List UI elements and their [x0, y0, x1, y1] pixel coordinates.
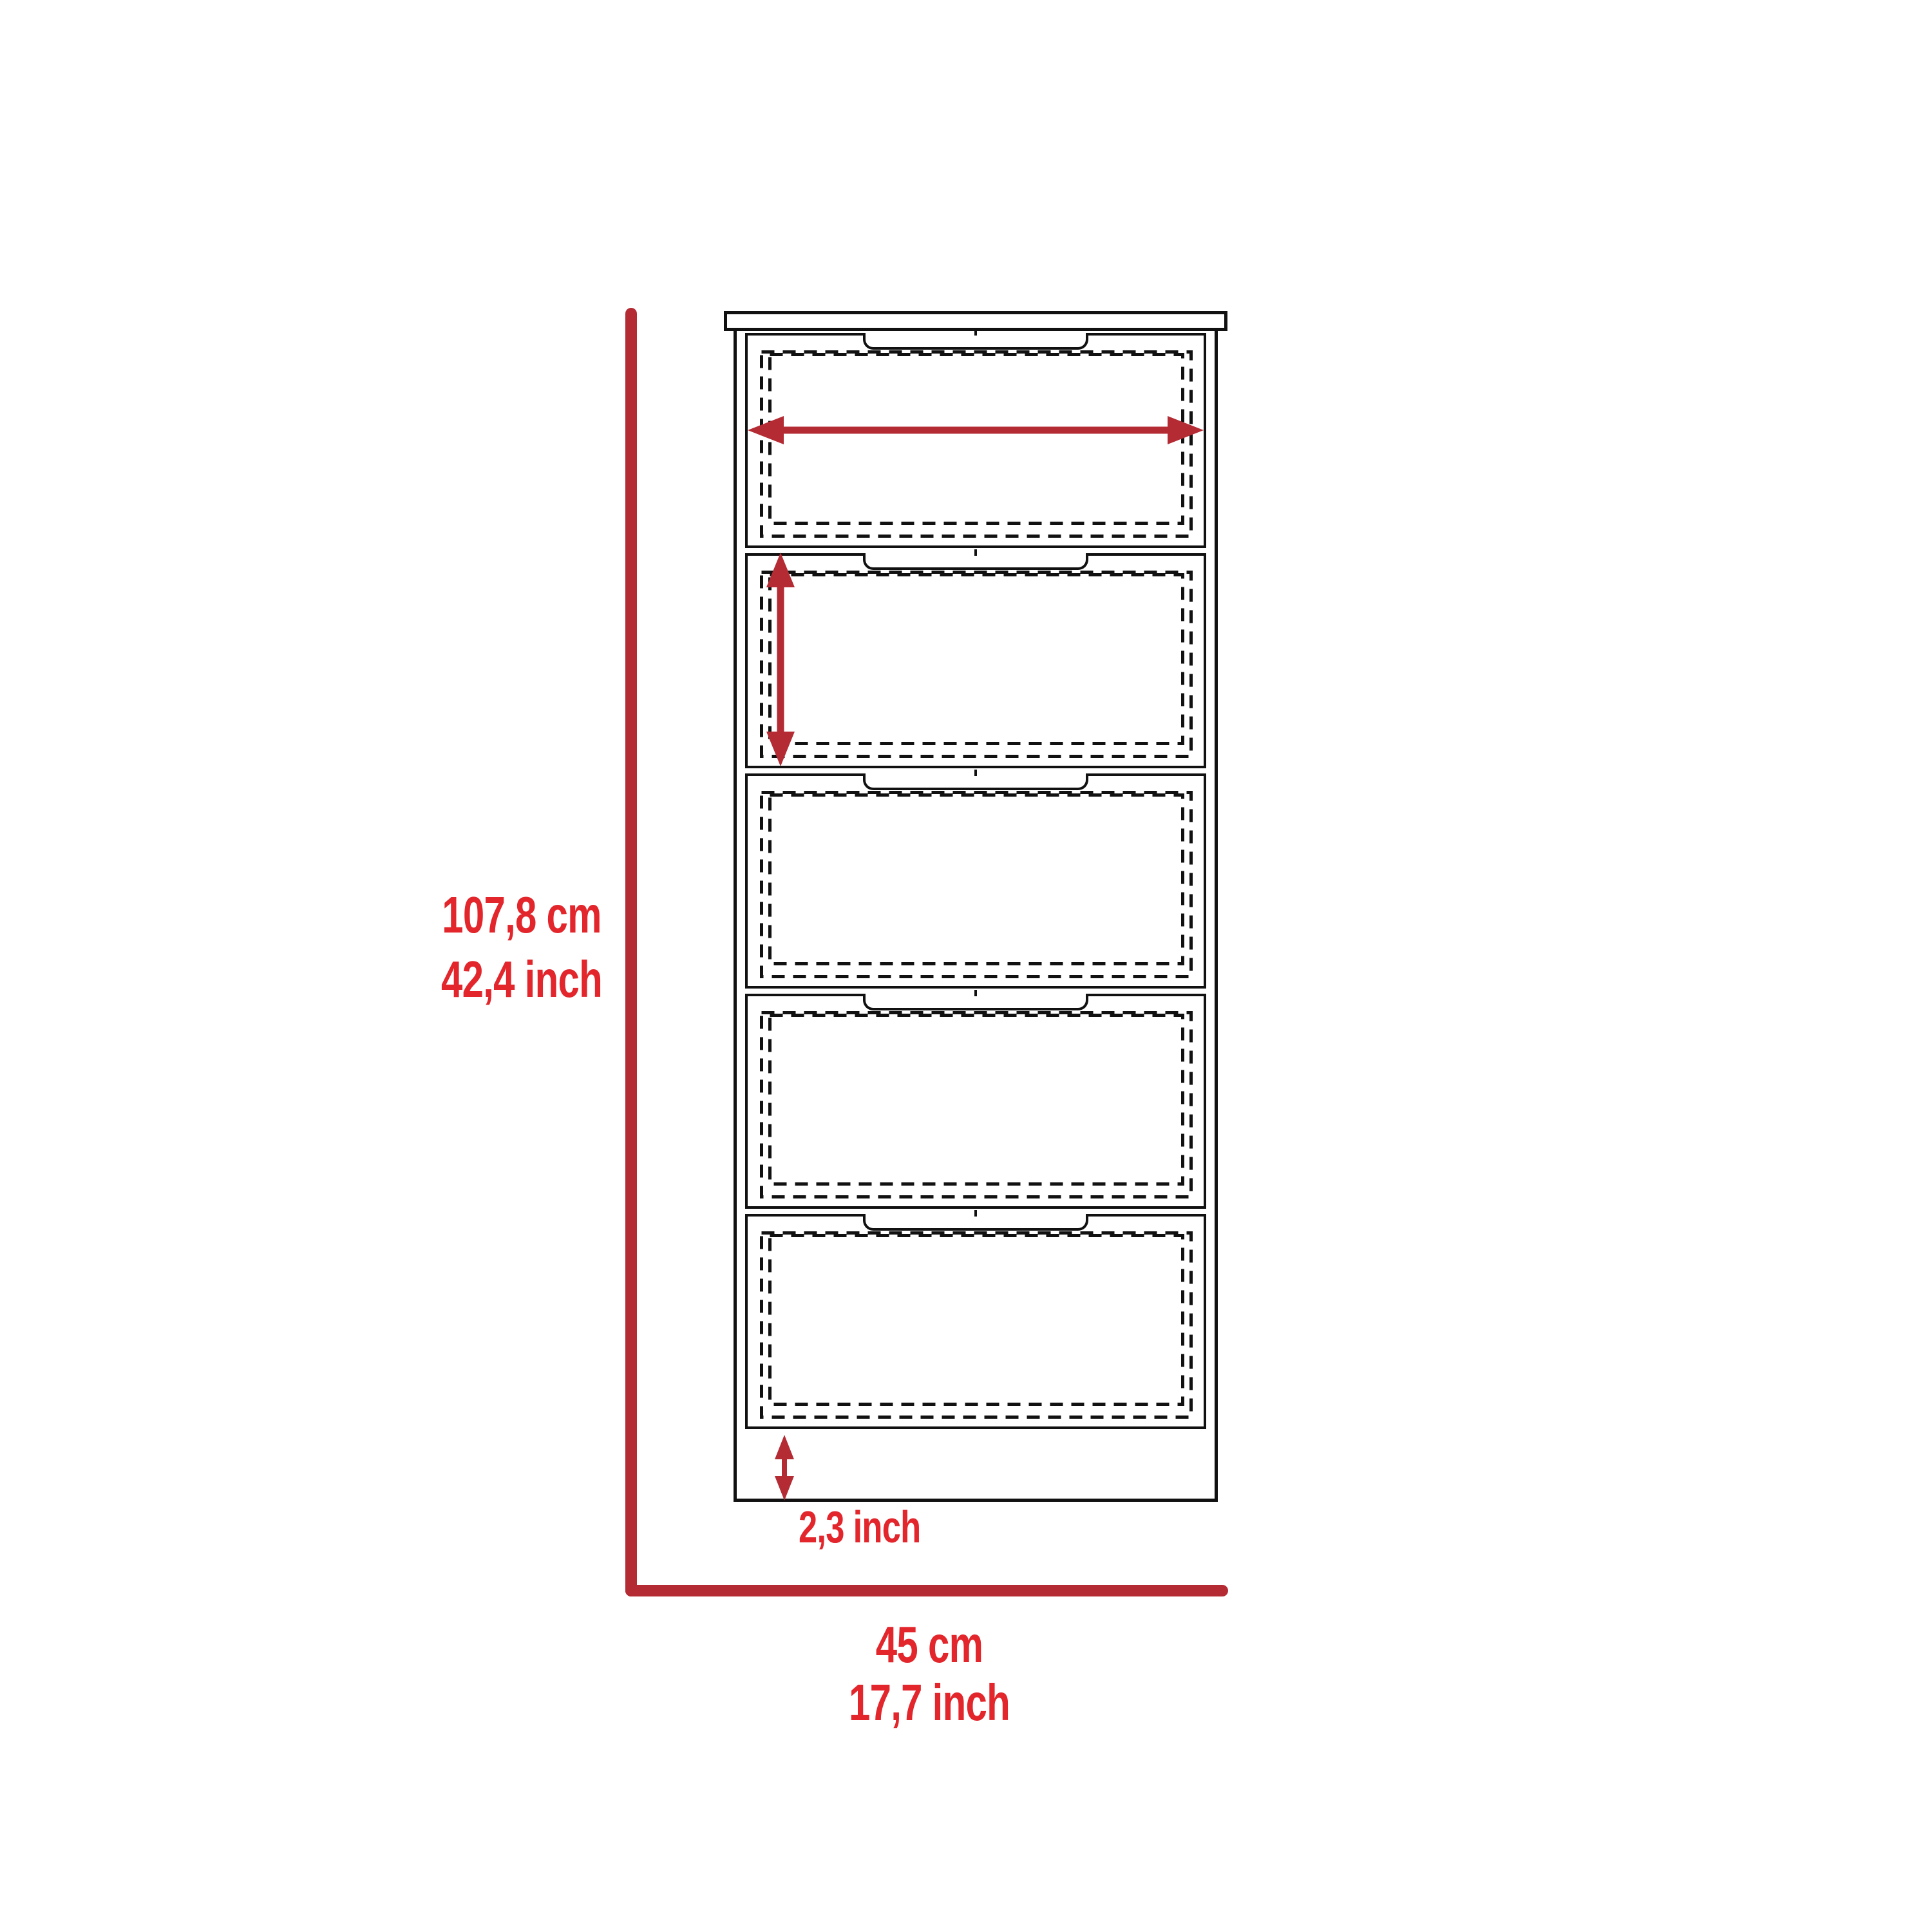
base-height-arrow — [773, 1434, 796, 1502]
dimension-diagram: 41,4 cm 16,2 inch 19 cm 7,2 inch 107,8 c… — [0, 0, 1932, 1932]
drawer-4 — [745, 994, 1206, 1209]
cabinet-top-board — [724, 311, 1227, 331]
overall-height-label-inch: 42,4 inch — [377, 954, 667, 1005]
overall-height-dimension-line — [625, 308, 637, 1596]
drawer-top-tick — [974, 549, 977, 556]
drawer-width-arrow — [745, 412, 1206, 448]
drawer-2 — [745, 553, 1206, 768]
drawer-top-tick — [974, 770, 977, 776]
overall-width-dimension-line — [625, 1585, 1228, 1596]
base-height-label-inch: 2,3 inch — [799, 1504, 920, 1549]
drawer-dashed-outline — [759, 1010, 1194, 1200]
overall-height-label-cm: 107,8 cm — [377, 889, 667, 941]
overall-width-label-cm: 45 cm — [784, 1619, 1074, 1671]
drawer-top-tick — [974, 329, 977, 336]
drawer-dashed-outline — [759, 790, 1194, 980]
drawer-dashed-outline — [759, 569, 1194, 759]
drawer-5 — [745, 1214, 1206, 1429]
drawer-top-tick — [974, 1210, 977, 1217]
overall-width-label-inch: 17,7 inch — [784, 1677, 1074, 1728]
drawer-dashed-outline — [759, 1230, 1194, 1420]
drawer-top-tick — [974, 990, 977, 996]
drawer-height-arrow — [764, 550, 797, 769]
drawer-3 — [745, 773, 1206, 989]
